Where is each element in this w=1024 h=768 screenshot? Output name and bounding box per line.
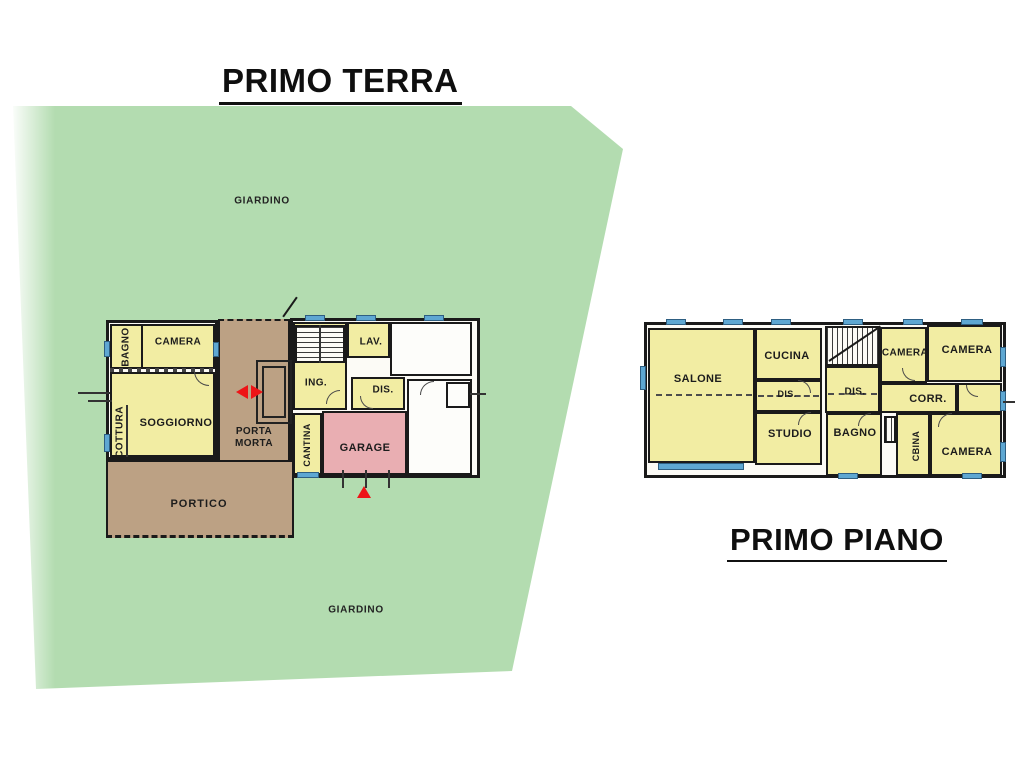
stairs-center-line (319, 325, 321, 363)
window-marker (104, 341, 110, 357)
room-label-cantina: CANTINA (302, 423, 312, 466)
window-marker (297, 472, 319, 478)
room-label-dis-ground: DIS. (372, 385, 393, 396)
window-marker (962, 473, 982, 479)
window-marker (771, 319, 791, 325)
room-label-salone: SALONE (674, 373, 722, 385)
title-ground-floor: PRIMO TERRA (219, 62, 462, 105)
window-marker (104, 434, 110, 452)
room-label-camera-top-mid: CAMERA (882, 348, 928, 359)
floorplan-page: GIARDINO GIARDINO PRIMO TERRA PRIMO PIAN… (0, 0, 1024, 768)
room-label-corr: CORR. (909, 393, 946, 405)
window-marker (213, 342, 219, 357)
room-bagno-first (826, 413, 882, 476)
entrance-arrow-right-icon (251, 385, 263, 399)
cottura-partition-wall (126, 405, 128, 457)
room-label-porta-morta: PORTA MORTA (222, 426, 286, 450)
porta-morta-shaft-inner (262, 366, 286, 418)
window-marker (356, 315, 376, 321)
garden-label-top: GIARDINO (234, 196, 290, 207)
window-marker (424, 315, 444, 321)
driveway-tick (342, 470, 344, 488)
garage-entrance-arrow-icon (357, 486, 371, 498)
room-label-camera-top-right: CAMERA (942, 344, 993, 356)
window-marker (640, 366, 646, 390)
room-label-cottura: COTTURA (115, 406, 126, 458)
dashed-line (656, 394, 752, 396)
room-label-bagno-ground: BAGNO (121, 327, 132, 366)
room-label-cbina: CBINA (911, 431, 921, 462)
entrance-arrow-left-icon (236, 385, 248, 399)
room-label-studio: STUDIO (768, 428, 812, 440)
window-marker (723, 319, 743, 325)
dimension-tick (78, 392, 110, 394)
room-label-camera-ground: CAMERA (155, 337, 201, 348)
room-label-lav: LAV. (360, 337, 383, 348)
terrace-window-band (658, 463, 744, 470)
room-label-bagno-first: BAGNO (834, 427, 877, 439)
title-first-floor: PRIMO PIANO (727, 522, 947, 562)
room-label-dis-left: DIS. (777, 389, 796, 399)
room-unlabeled-top (390, 322, 472, 376)
room-label-portico: PORTICO (170, 498, 227, 510)
window-marker (1000, 347, 1006, 367)
dimension-tick (88, 400, 112, 402)
room-label-dis-right: DIS. (844, 387, 865, 398)
room-label-cucina: CUCINA (764, 350, 809, 362)
window-marker (903, 319, 923, 325)
garden-label-bottom: GIARDINO (328, 605, 384, 616)
duct-shaft (884, 416, 896, 443)
window-marker (843, 319, 863, 325)
window-marker (305, 315, 325, 321)
room-label-soggiorno: SOGGIORNO (140, 417, 213, 429)
window-marker (838, 473, 858, 479)
room-corr-east-nook (957, 383, 1002, 413)
window-marker (666, 319, 686, 325)
dimension-tick (470, 393, 486, 395)
room-label-camera-bottom: CAMERA (942, 446, 993, 458)
room-closet (446, 382, 470, 408)
room-label-ing: ING. (305, 378, 327, 389)
room-label-garage: GARAGE (340, 442, 391, 454)
driveway-tick (388, 470, 390, 488)
window-marker (961, 319, 983, 325)
window-marker (1000, 442, 1006, 462)
dimension-tick (1003, 401, 1015, 403)
